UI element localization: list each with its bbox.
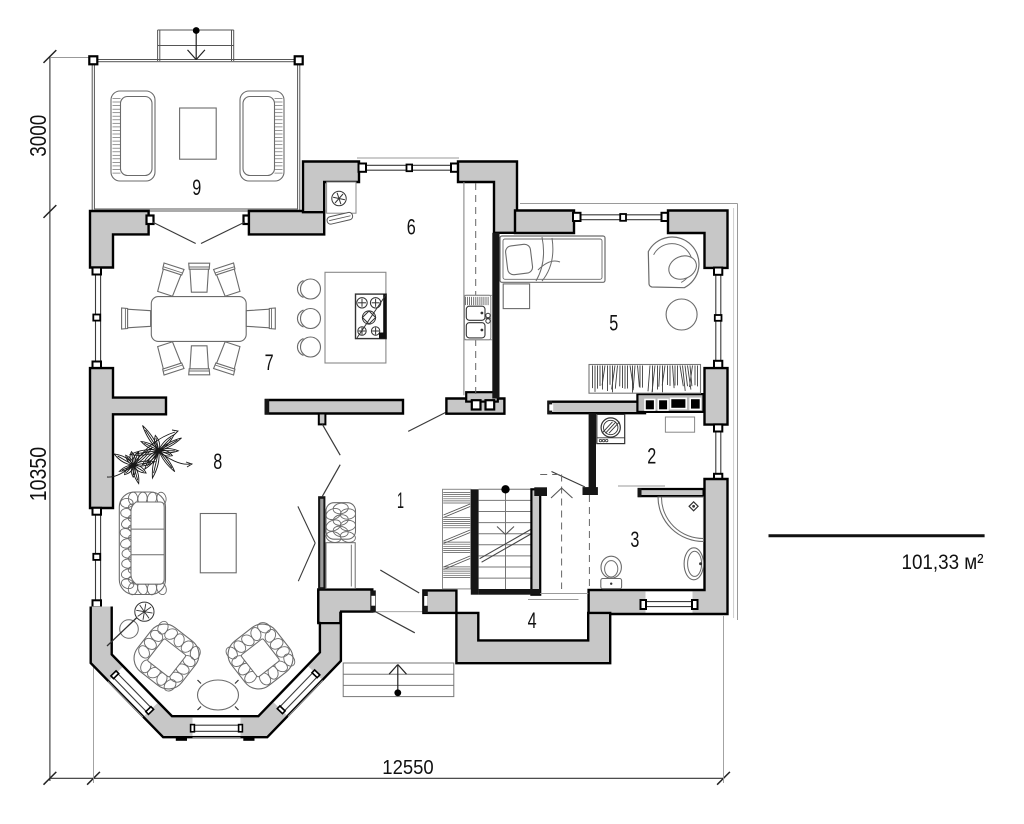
svg-text:3000: 3000 — [25, 115, 51, 157]
svg-text:4: 4 — [528, 608, 537, 633]
svg-text:3: 3 — [630, 527, 639, 552]
svg-text:1: 1 — [397, 488, 404, 513]
svg-text:101,33 м²: 101,33 м² — [902, 550, 984, 574]
svg-text:10350: 10350 — [25, 447, 51, 501]
svg-text:2: 2 — [647, 444, 656, 469]
svg-text:8: 8 — [213, 449, 222, 474]
svg-text:7: 7 — [265, 350, 274, 375]
svg-text:9: 9 — [192, 175, 201, 200]
svg-text:12550: 12550 — [382, 757, 433, 779]
svg-text:5: 5 — [609, 310, 618, 335]
svg-text:6: 6 — [407, 214, 416, 239]
